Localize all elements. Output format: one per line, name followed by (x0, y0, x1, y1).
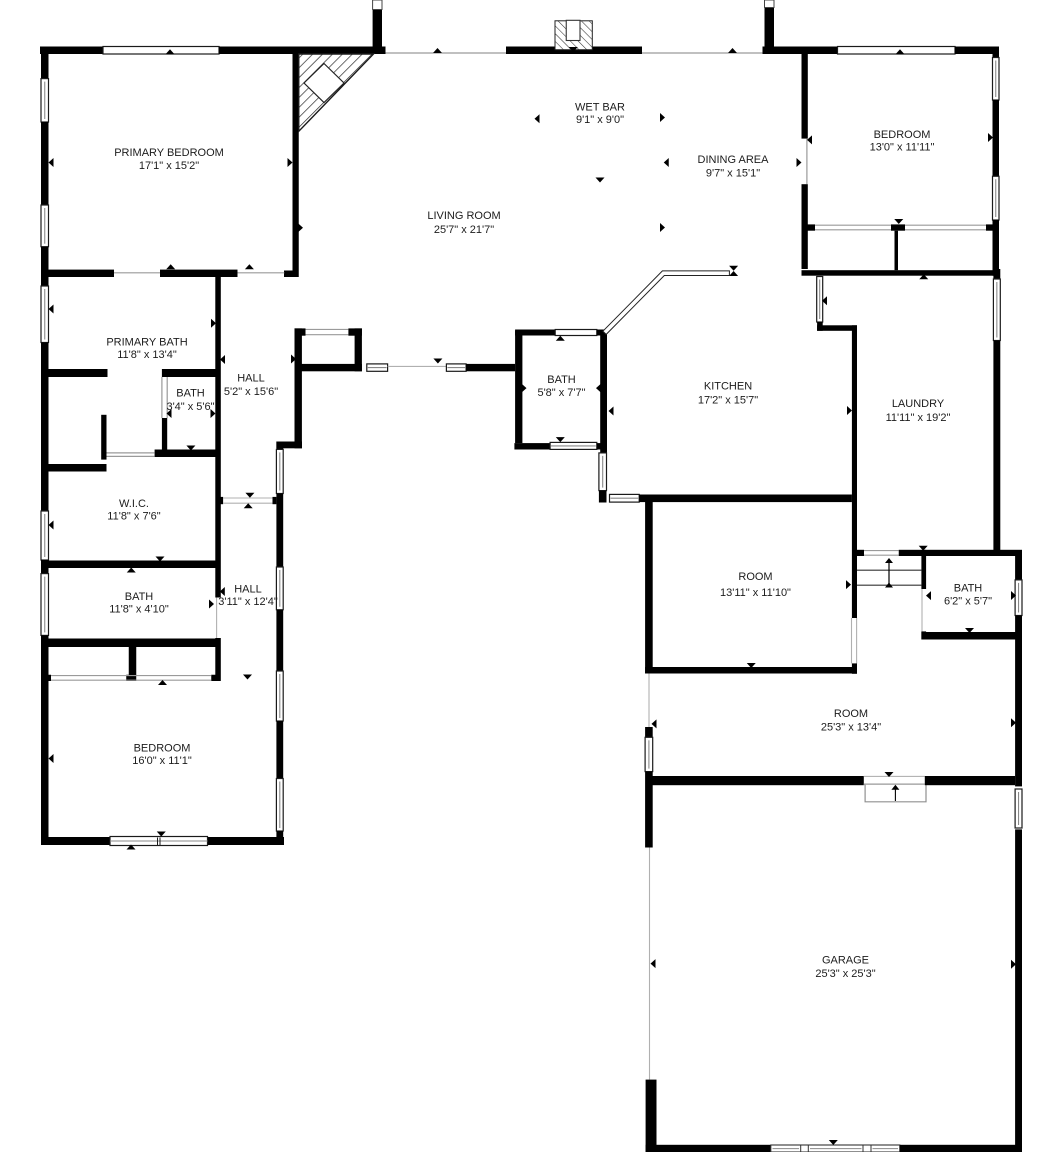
svg-text:ROOM: ROOM (834, 708, 868, 720)
svg-text:KITCHEN: KITCHEN (704, 381, 752, 393)
svg-text:PRIMARY BEDROOM: PRIMARY BEDROOM (114, 147, 224, 159)
svg-text:11'8" x 4'10": 11'8" x 4'10" (109, 604, 169, 616)
svg-text:25'3" x 25'3": 25'3" x 25'3" (815, 968, 875, 980)
svg-text:W.I.C.: W.I.C. (119, 498, 149, 510)
svg-text:BATH: BATH (954, 583, 983, 595)
svg-text:13'11" x 11'10": 13'11" x 11'10" (720, 587, 791, 599)
svg-text:3'11" x 12'4": 3'11" x 12'4" (218, 596, 278, 608)
svg-text:GARAGE: GARAGE (822, 955, 869, 967)
svg-text:5'2" x 15'6": 5'2" x 15'6" (224, 386, 278, 398)
svg-text:LAUNDRY: LAUNDRY (892, 398, 945, 410)
svg-text:PRIMARY BATH: PRIMARY BATH (106, 337, 187, 349)
svg-text:3'4" x 5'6": 3'4" x 5'6" (166, 401, 214, 413)
svg-text:BEDROOM: BEDROOM (134, 743, 191, 755)
svg-text:11'8" x 7'6": 11'8" x 7'6" (107, 511, 160, 523)
svg-text:11'8" x 13'4": 11'8" x 13'4" (117, 349, 177, 361)
svg-text:11'11" x 19'2": 11'11" x 19'2" (886, 412, 951, 424)
svg-text:LIVING ROOM: LIVING ROOM (427, 210, 500, 222)
svg-text:ROOM: ROOM (738, 571, 772, 583)
svg-text:WET BAR: WET BAR (575, 102, 625, 114)
svg-text:9'1" x 9'0": 9'1" x 9'0" (576, 114, 624, 126)
svg-text:HALL: HALL (234, 584, 262, 596)
svg-text:16'0" x 11'1": 16'0" x 11'1" (132, 755, 192, 767)
svg-text:DINING AREA: DINING AREA (698, 154, 770, 166)
svg-text:25'7" x 21'7": 25'7" x 21'7" (434, 224, 494, 236)
svg-text:17'1" x 15'2": 17'1" x 15'2" (139, 160, 199, 172)
svg-text:5'8" x 7'7": 5'8" x 7'7" (537, 387, 585, 399)
svg-text:6'2" x 5'7": 6'2" x 5'7" (944, 596, 992, 608)
svg-text:HALL: HALL (237, 373, 265, 385)
svg-text:25'3" x 13'4": 25'3" x 13'4" (821, 722, 881, 734)
svg-text:BATH: BATH (125, 591, 154, 603)
svg-text:BATH: BATH (176, 388, 205, 400)
svg-text:BEDROOM: BEDROOM (874, 129, 931, 141)
svg-text:9'7" x 15'1": 9'7" x 15'1" (706, 168, 760, 180)
svg-text:17'2" x 15'7": 17'2" x 15'7" (698, 395, 758, 407)
svg-text:13'0" x 11'11": 13'0" x 11'11" (870, 142, 935, 154)
svg-text:BATH: BATH (547, 374, 576, 386)
